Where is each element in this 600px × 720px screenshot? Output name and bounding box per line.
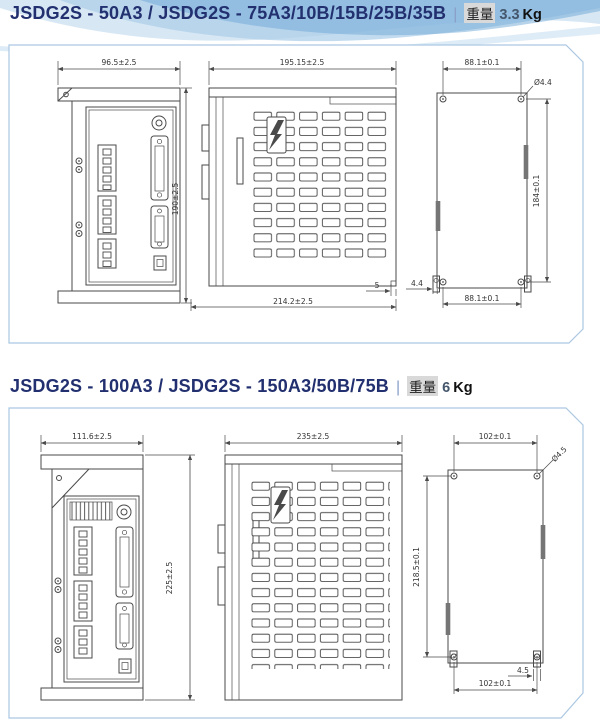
datasheet-page: { "sections": [ { "title": "JSDG2S - 50A…	[0, 0, 600, 720]
section1-weight-value: 3.3	[499, 7, 519, 23]
back-height-label-2: 218.5±0.1	[412, 547, 421, 587]
front-width-label-2: 111.6±2.5	[72, 432, 112, 441]
section2-weight-label: 重量	[407, 376, 438, 396]
section1-model-title: JSDG2S - 50A3 / JSDG2S - 75A3/10B/15B/25…	[10, 3, 446, 24]
front-height-label-2: 225±2.5	[165, 562, 174, 595]
brand-logo-2	[271, 487, 290, 523]
edge-slot-right-1	[524, 145, 529, 179]
front-width-label-1: 96.5±2.5	[102, 58, 137, 67]
side-step-label-1: 5	[375, 281, 380, 290]
edge-slot-left-2	[446, 603, 451, 635]
section1-title-row: JSDG2S - 50A3 / JSDG2S - 75A3/10B/15B/25…	[10, 3, 542, 24]
back-span-bottom-label-2: 102±0.1	[479, 679, 512, 688]
brand-logo-1	[267, 117, 286, 153]
back-height-label-1: 184±0.1	[532, 175, 541, 208]
side-total-depth-label-1: 214.2±2.5	[273, 297, 313, 306]
back-span-bottom-label-1: 88.1±0.1	[465, 294, 500, 303]
hole-dia-label-1: Ø4.4	[534, 78, 552, 87]
section1-divider: |	[453, 6, 457, 24]
edge-slot-left-1	[436, 201, 441, 231]
front-vent-slits-2	[70, 502, 112, 520]
section2-model-title: JSDG2S - 100A3 / JSDG2S - 150A3/50B/75B	[10, 376, 389, 397]
side-depth-label-2: 235±2.5	[297, 432, 330, 441]
section2-divider: |	[396, 379, 400, 397]
foot-offset-label-2: 4.5	[517, 666, 529, 675]
section1-weight-unit: Kg	[523, 7, 542, 23]
front-height-label-1: 190±2.5	[171, 183, 180, 216]
section1-weight-label: 重量	[464, 3, 495, 23]
foot-offset-label-1: 4.4	[411, 279, 423, 288]
section1-drawing: 96.5±2.5	[0, 33, 600, 349]
section2-title-row: JSDG2S - 100A3 / JSDG2S - 150A3/50B/75B …	[10, 376, 473, 397]
edge-slot-right-2	[541, 525, 546, 559]
section2-weight-unit: Kg	[453, 380, 472, 396]
back-span-top-label-2: 102±0.1	[479, 432, 512, 441]
section2-drawing: 111.6±2.5	[0, 375, 600, 720]
section2-weight-value: 6	[442, 380, 450, 396]
back-span-top-label-1: 88.1±0.1	[465, 58, 500, 67]
side-depth-label-1: 195.15±2.5	[280, 58, 325, 67]
